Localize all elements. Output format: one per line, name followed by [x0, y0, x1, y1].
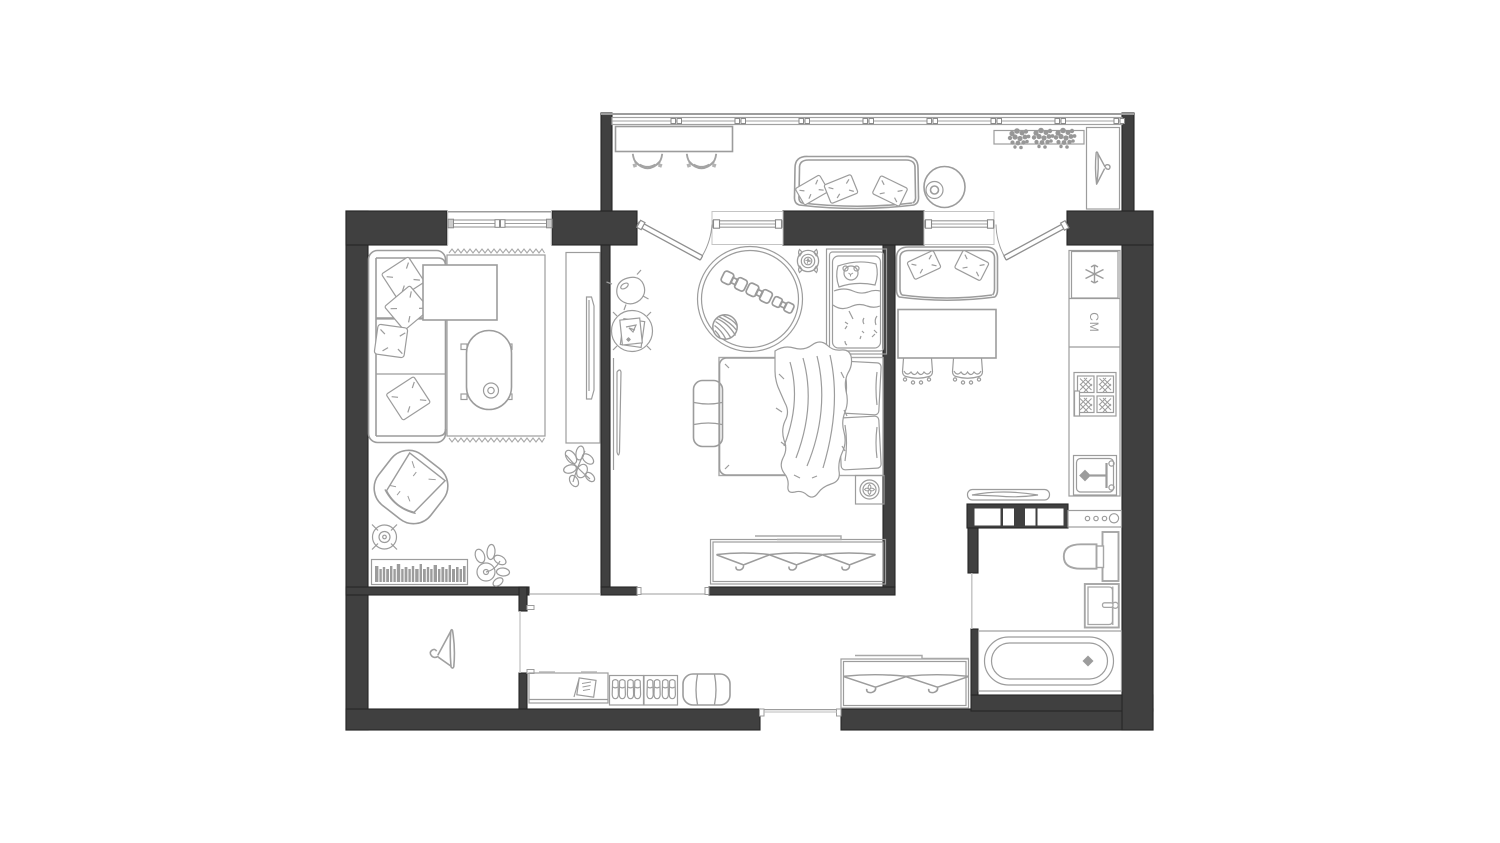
svg-text:СМ: СМ [1087, 312, 1101, 333]
